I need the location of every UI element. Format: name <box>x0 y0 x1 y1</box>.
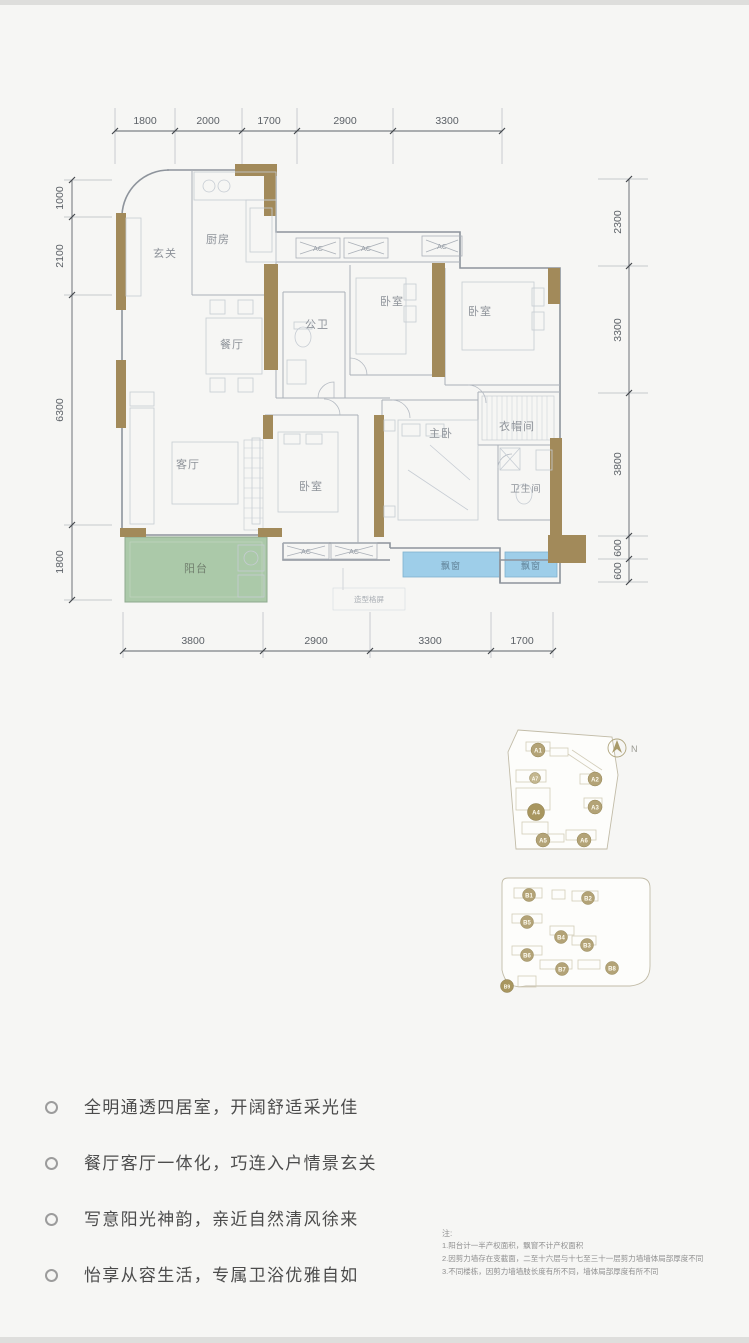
bay-window-label-1: 飘窗 <box>441 560 461 571</box>
notes-line-3: 3.不同楼栋，因剪力墙墙肢长度有所不同，墙体局部厚度有所不同 <box>442 1265 742 1278</box>
building-a1: A1 <box>534 749 542 755</box>
dim-right-2: 3300 <box>612 318 624 342</box>
room-balcony: 阳台 <box>184 561 208 575</box>
dim-bottom-1: 3800 <box>181 635 205 647</box>
dim-top-3: 1700 <box>257 115 281 127</box>
feature-item: 餐厅客厅一体化，巧连入户情景玄关 <box>45 1152 475 1176</box>
photo-edge-bottom <box>0 1337 749 1343</box>
dim-right-4: 600 <box>612 539 624 557</box>
ac-label-1: AC <box>313 246 323 253</box>
bullet-ring-icon <box>45 1157 58 1170</box>
dim-right-5: 600 <box>612 562 624 580</box>
title-block: C-1 户 型 123m 建面约 2 4房2厅2卫 <box>0 930 749 1060</box>
notes-line-2: 2.因剪力墙存在变截面，二至十六层与十七至三十一层剪力墙墙体局部厚度不同 <box>442 1252 742 1265</box>
feature-list: 全明通透四居室，开阔舒适采光佳 餐厅客厅一体化，巧连入户情景玄关 写意阳光神韵，… <box>45 1096 475 1320</box>
ac-label-4: AC <box>301 549 311 556</box>
dim-top-1: 1800 <box>133 115 157 127</box>
room-entry: 玄关 <box>153 246 177 260</box>
building-b5: B5 <box>523 921 531 927</box>
site-plan-zone-a: N A1 A2 A3 A4 A5 A6 A7 <box>492 722 672 864</box>
room-cloakroom: 衣帽间 <box>499 419 535 433</box>
building-a2: A2 <box>591 778 599 784</box>
feature-text-2: 餐厅客厅一体化，巧连入户情景玄关 <box>84 1152 377 1176</box>
feature-item: 怡享从容生活，专属卫浴优雅自如 <box>45 1264 475 1288</box>
dim-left-4: 1800 <box>54 550 66 574</box>
building-b2: B2 <box>584 897 592 903</box>
dim-top-2: 2000 <box>196 115 220 127</box>
dim-left-1: 1000 <box>54 186 66 210</box>
feature-item: 全明通透四居室，开阔舒适采光佳 <box>45 1096 475 1120</box>
building-a4: A4 <box>532 811 540 817</box>
building-b1: B1 <box>525 894 533 900</box>
dim-bottom-4: 1700 <box>510 635 534 647</box>
notes-heading: 注: <box>442 1228 742 1239</box>
room-bathroom: 卫生间 <box>510 483 542 495</box>
outer-walls <box>122 170 560 583</box>
feature-item: 写意阳光神韵，亲近自然清风徐来 <box>45 1208 475 1232</box>
room-public-bath: 公卫 <box>305 319 329 331</box>
wardrobe-hatching <box>244 396 554 530</box>
feature-text-4: 怡享从容生活，专属卫浴优雅自如 <box>84 1264 359 1288</box>
dim-top-5: 3300 <box>435 115 459 127</box>
dim-left-2: 2100 <box>54 244 66 268</box>
room-bedroom-c: 卧室 <box>299 479 323 493</box>
notes-block: 注: 1.阳台计一半产权面积，飘窗不计产权面积 2.因剪力墙存在变截面，二至十六… <box>442 1228 742 1278</box>
dim-top-4: 2900 <box>333 115 357 127</box>
building-a3: A3 <box>591 806 599 812</box>
notes-line-1: 1.阳台计一半产权面积，飘窗不计产权面积 <box>442 1239 742 1252</box>
screen-annotation: 造型格屏 <box>333 568 405 610</box>
dim-right-3: 3800 <box>612 452 624 476</box>
dim-bottom-2: 2900 <box>304 635 328 647</box>
bullet-ring-icon <box>45 1213 58 1226</box>
floorplan-page: 1800 2000 1700 2900 3300 3800 2900 3300 … <box>0 0 749 1343</box>
screen-annotation-text: 造型格屏 <box>354 594 384 604</box>
room-kitchen: 厨房 <box>206 233 230 246</box>
ac-label-5: AC <box>349 549 359 556</box>
bullet-ring-icon <box>45 1101 58 1114</box>
ac-label-3: AC <box>437 244 447 251</box>
bullet-ring-icon <box>45 1269 58 1282</box>
room-living: 客厅 <box>176 457 200 471</box>
room-dining: 餐厅 <box>220 337 244 351</box>
building-a6: A6 <box>580 839 588 845</box>
room-master: 主卧 <box>429 427 453 440</box>
room-bedroom-a: 卧室 <box>380 294 404 308</box>
north-label: N <box>631 744 638 754</box>
floor-plan-drawing: 1800 2000 1700 2900 3300 3800 2900 3300 … <box>0 0 749 690</box>
dim-left-3: 6300 <box>54 398 66 422</box>
room-bedroom-b: 卧室 <box>468 304 492 318</box>
room-labels: 玄关 厨房 公卫 卧室 卧室 餐厅 客厅 卧室 主卧 衣帽间 卫生间 阳台 飘窗… <box>153 233 542 575</box>
feature-text-1: 全明通透四居室，开阔舒适采光佳 <box>84 1096 359 1120</box>
dim-right-1: 2300 <box>612 210 624 234</box>
ac-label-2: AC <box>361 246 371 253</box>
bay-window-label-2: 飘窗 <box>521 560 541 571</box>
dim-bottom-3: 3300 <box>418 635 442 647</box>
building-a5: A5 <box>539 839 547 845</box>
building-a7: A7 <box>532 777 539 783</box>
wall-blocks <box>116 164 586 563</box>
feature-text-3: 写意阳光神韵，亲近自然清风徐来 <box>84 1208 359 1232</box>
